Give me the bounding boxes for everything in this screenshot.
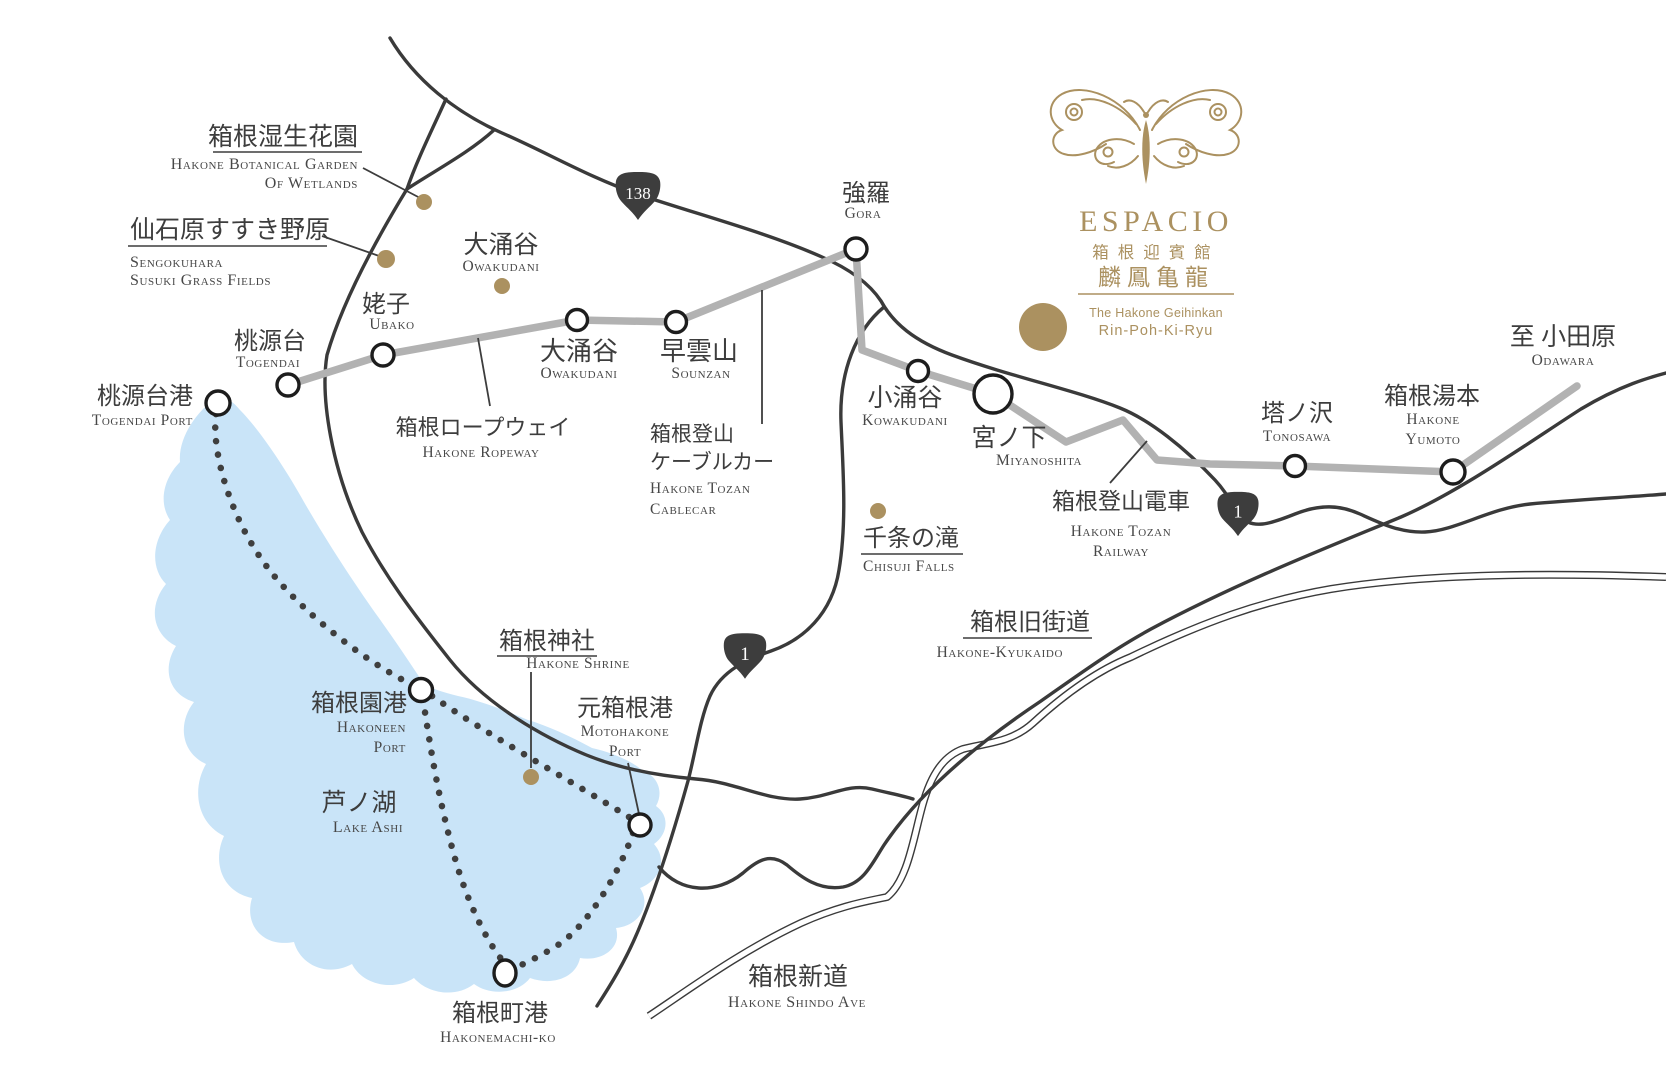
label-tozan-railway-en2: Railway <box>1093 543 1149 560</box>
label-chisuji-en: Chisuji Falls <box>863 558 955 575</box>
label-hakoneen-jp: 箱根園港 <box>311 690 407 717</box>
butterfly-ornament-icon <box>1051 90 1242 184</box>
label-sounzan-en: Sounzan <box>671 365 730 382</box>
label-sengokuhara-en2: Susuki Grass Fields <box>130 272 271 289</box>
label-ropeway-en: Hakone Ropeway <box>422 444 539 461</box>
label-togendai-port-jp: 桃源台港 <box>97 383 193 410</box>
route-badge-138: 138 <box>616 172 661 220</box>
espacio-logo: ESPACIO 箱根迎賓館 麟鳳亀龍 The Hakone Geihinkan … <box>1051 90 1242 339</box>
label-owakudani-area-en: Owakudani <box>462 258 539 275</box>
label-cablecar-jp2: ケーブルカー <box>650 450 774 474</box>
port-togendai <box>206 391 230 415</box>
label-shrine-jp: 箱根神社 <box>499 628 595 655</box>
station-hakone-yumoto <box>1441 460 1465 484</box>
label-sounzan-jp: 早雲山 <box>660 337 738 366</box>
label-tonosawa-en: Tonosawa <box>1263 428 1331 445</box>
label-cablecar-en1: Hakone Tozan <box>650 480 751 497</box>
label-owakudani-sta-en: Owakudani <box>540 365 617 382</box>
label-yumoto-jp: 箱根湯本 <box>1384 383 1480 410</box>
label-owakudani-sta-jp: 大涌谷 <box>540 337 618 366</box>
label-togendai-jp: 桃源台 <box>234 328 306 355</box>
logo-en1: The Hakone Geihinkan <box>1089 306 1223 320</box>
label-tozan-railway-en1: Hakone Tozan <box>1071 523 1172 540</box>
label-miyanoshita-en: Miyanoshita <box>996 452 1082 469</box>
label-owakudani-area-jp: 大涌谷 <box>463 231 538 259</box>
station-togendai <box>277 374 299 396</box>
label-lake-ashi-jp: 芦ノ湖 <box>321 789 396 817</box>
route-badge-1-tonosawa: 1 <box>1217 492 1258 536</box>
label-motohakone-en1: Motohakone <box>581 723 670 740</box>
route-badge-1-label: 1 <box>740 644 750 665</box>
logo-jp1: 箱根迎賓館 <box>1092 243 1220 262</box>
station-owakudani <box>567 310 588 331</box>
label-gora-jp: 強羅 <box>842 180 890 207</box>
kyukaido-odawara-road <box>659 373 1666 888</box>
port-hakonemachi <box>494 960 516 986</box>
station-gora <box>845 238 867 260</box>
label-shrine-en: Hakone Shrine <box>526 655 630 672</box>
label-tozan-railway-jp: 箱根登山電車 <box>1052 489 1190 514</box>
label-yumoto-en2: Yumoto <box>1406 431 1461 448</box>
label-kowakudani-en: Kowakudani <box>862 412 948 429</box>
label-hakonemachi-en: Hakonemachi-ko <box>440 1029 556 1046</box>
hakone-shindo-road <box>649 575 1666 1016</box>
label-miyanoshita-jp: 宮ノ下 <box>971 424 1046 452</box>
label-shindo-en: Hakone Shindo Ave <box>728 994 866 1011</box>
chisuji-falls-dot <box>870 503 886 519</box>
label-hakoneen-en2: Port <box>374 739 406 756</box>
label-togendai-port-en: Togendai Port <box>92 412 193 429</box>
leader-tozan-railway <box>1110 441 1147 483</box>
route-badge-1-label: 1 <box>1233 502 1242 522</box>
route-badge-138-label: 138 <box>625 184 651 203</box>
label-yumoto-en1: Hakone <box>1406 411 1459 428</box>
label-togendai-en: Togendai <box>236 354 300 371</box>
label-shindo-jp: 箱根新道 <box>748 963 848 991</box>
label-kyukaido-en: Hakone-Kyukaido <box>937 644 1063 661</box>
station-ubako <box>372 344 394 366</box>
label-sengokuhara-jp: 仙石原すすき野原 <box>130 216 330 244</box>
label-kowakudani-jp: 小涌谷 <box>867 384 942 412</box>
label-gora-en: Gora <box>845 205 882 222</box>
label-botanical-en1: Hakone Botanical Garden <box>171 156 358 173</box>
label-cablecar-en2: Cablecar <box>650 501 717 518</box>
label-motohakone-en2: Port <box>609 743 641 760</box>
leader-ropeway <box>478 338 490 406</box>
label-motohakone-jp: 元箱根港 <box>577 695 673 722</box>
station-miyanoshita <box>974 375 1012 413</box>
label-ropeway-jp: 箱根ロープウェイ <box>396 415 571 440</box>
label-cablecar-jp1: 箱根登山 <box>650 422 734 446</box>
label-hakoneen-en1: Hakoneen <box>337 719 406 736</box>
map-canvas: 138 1 1 箱根湿生花園 Hakone Botanical Garden O… <box>0 0 1666 1077</box>
label-lake-ashi-en: Lake Ashi <box>333 819 403 836</box>
label-chisuji-jp: 千条の滝 <box>863 525 959 552</box>
station-sounzan <box>666 312 687 333</box>
label-sengokuhara-en1: Sengokuhara <box>130 254 223 271</box>
label-ubako-en: Ubako <box>369 316 414 333</box>
sengokuhara-dot <box>377 250 395 268</box>
label-tonosawa-jp: 塔ノ沢 <box>1261 400 1333 427</box>
label-odawara-jp: 至 小田原 <box>1510 323 1616 351</box>
station-tonosawa <box>1285 456 1306 477</box>
label-odawara-en: Odawara <box>1532 352 1595 369</box>
logo-en2: Rin-Poh-Ki-Ryu <box>1099 323 1214 339</box>
label-hakonemachi-jp: 箱根町港 <box>452 1000 548 1027</box>
logo-brand: ESPACIO <box>1079 205 1233 238</box>
label-ubako-jp: 姥子 <box>362 291 410 318</box>
hakone-shrine-dot <box>523 769 539 785</box>
logo-jp2: 麟鳳亀龍 <box>1098 265 1214 290</box>
owakudani-area-dot <box>494 278 510 294</box>
hakone-access-map: 138 1 1 箱根湿生花園 Hakone Botanical Garden O… <box>0 0 1666 1077</box>
espacio-hotel-dot <box>1019 303 1067 351</box>
label-botanical-en2: Of Wetlands <box>265 175 358 192</box>
port-motohakone <box>629 814 651 836</box>
botanical-garden-dot <box>416 194 432 210</box>
label-kyukaido-jp: 箱根旧街道 <box>970 609 1090 636</box>
port-hakoneen <box>410 679 433 702</box>
label-botanical-jp: 箱根湿生花園 <box>208 123 358 151</box>
station-kowakudani <box>908 361 929 382</box>
